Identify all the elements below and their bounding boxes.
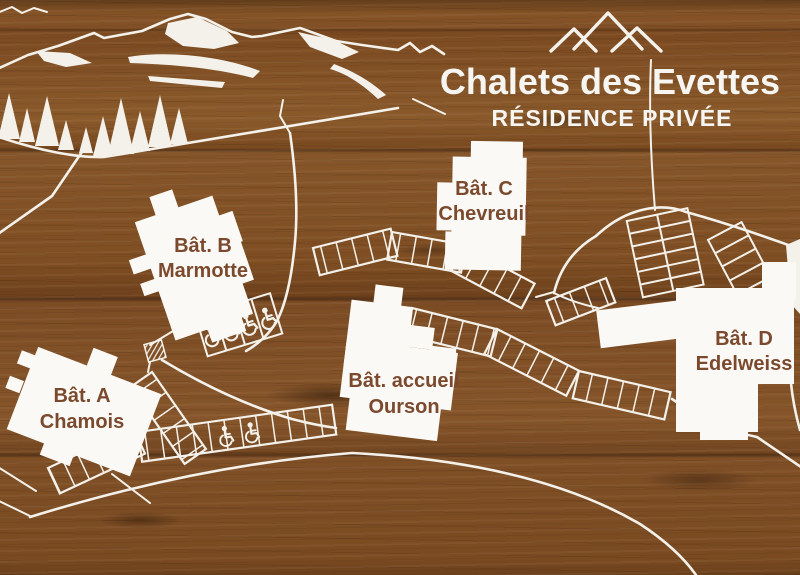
building-a-code: Bât. A — [53, 385, 110, 407]
snow-patch — [298, 32, 359, 59]
building-d-name: Edelweiss — [696, 353, 793, 375]
parking-band — [313, 229, 397, 276]
building-c-name: Chevreuil — [438, 203, 529, 225]
pine-tree-icon — [58, 120, 74, 150]
sign-subtitle: RÉSIDENCE PRIVÉE — [492, 104, 733, 131]
building-c-code: Bât. C — [455, 178, 513, 200]
far-ridge-zigzag — [0, 7, 47, 13]
building-b-code: Bât. B — [174, 235, 232, 257]
pine-tree-icon — [19, 108, 35, 142]
pine-tree-icon — [170, 108, 188, 144]
pine-tree-icon — [79, 127, 93, 153]
stairs-hatch — [144, 340, 166, 362]
building-a-name: Chamois — [40, 411, 124, 433]
snow-streak — [128, 54, 260, 78]
parking-band — [484, 329, 579, 396]
sign-header: Chalets des Evettes RÉSIDENCE PRIVÉE — [440, 13, 780, 131]
building-d-code: Bât. D — [715, 328, 773, 350]
pine-tree-icon — [148, 95, 172, 147]
parking-grid — [708, 222, 771, 295]
snow-patch — [36, 51, 92, 67]
wooden-sign-board: Chalets des Evettes RÉSIDENCE PRIVÉE — [0, 0, 800, 575]
pine-tree-icon — [108, 98, 134, 154]
pine-tree-icon — [35, 96, 59, 146]
building-accueil-code: Bât. accueil — [348, 370, 459, 392]
building-d-shape — [596, 262, 796, 440]
snow-streak — [148, 76, 225, 88]
parking-band — [573, 371, 671, 419]
road — [0, 149, 84, 234]
snow-streak — [330, 64, 386, 99]
pine-tree-icon — [130, 111, 150, 151]
snow-patch — [165, 17, 239, 49]
site-map: Chalets des Evettes RÉSIDENCE PRIVÉE — [0, 0, 800, 575]
building-accueil-shape — [336, 282, 465, 443]
building-accueil-name: Ourson — [368, 396, 439, 418]
building-b-name: Marmotte — [158, 260, 248, 282]
parking-grid — [627, 208, 704, 297]
pine-tree-icon — [0, 93, 20, 139]
three-peaks-icon — [551, 13, 661, 51]
sign-title: Chalets des Evettes — [440, 61, 780, 102]
